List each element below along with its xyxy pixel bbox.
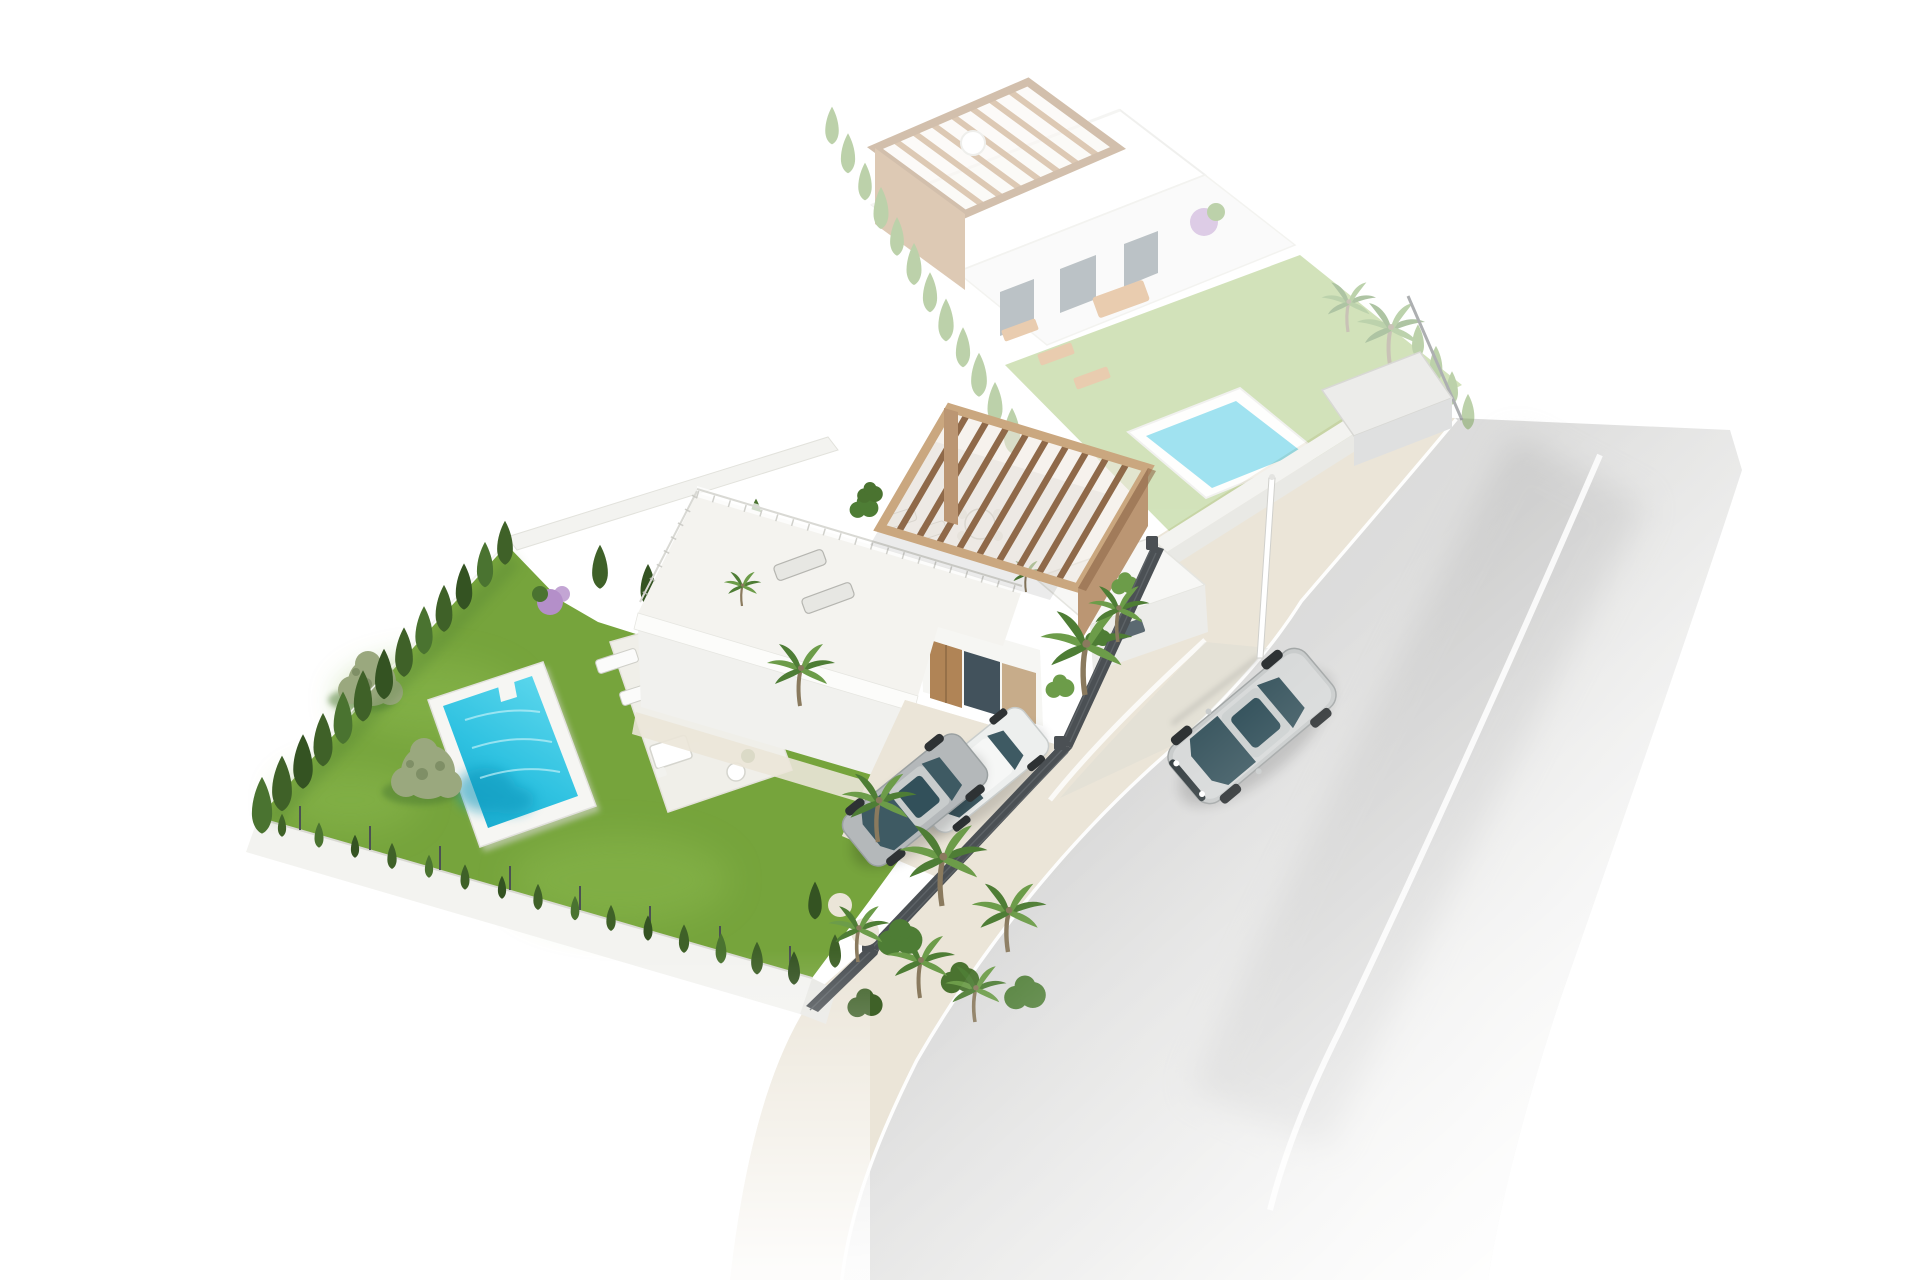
render-canvas <box>0 0 1920 1280</box>
architectural-render: Isometric aerial 3D render: a modern whi… <box>0 0 1920 1280</box>
glass-door <box>964 651 1000 716</box>
bottom-left-fade <box>170 930 870 1280</box>
